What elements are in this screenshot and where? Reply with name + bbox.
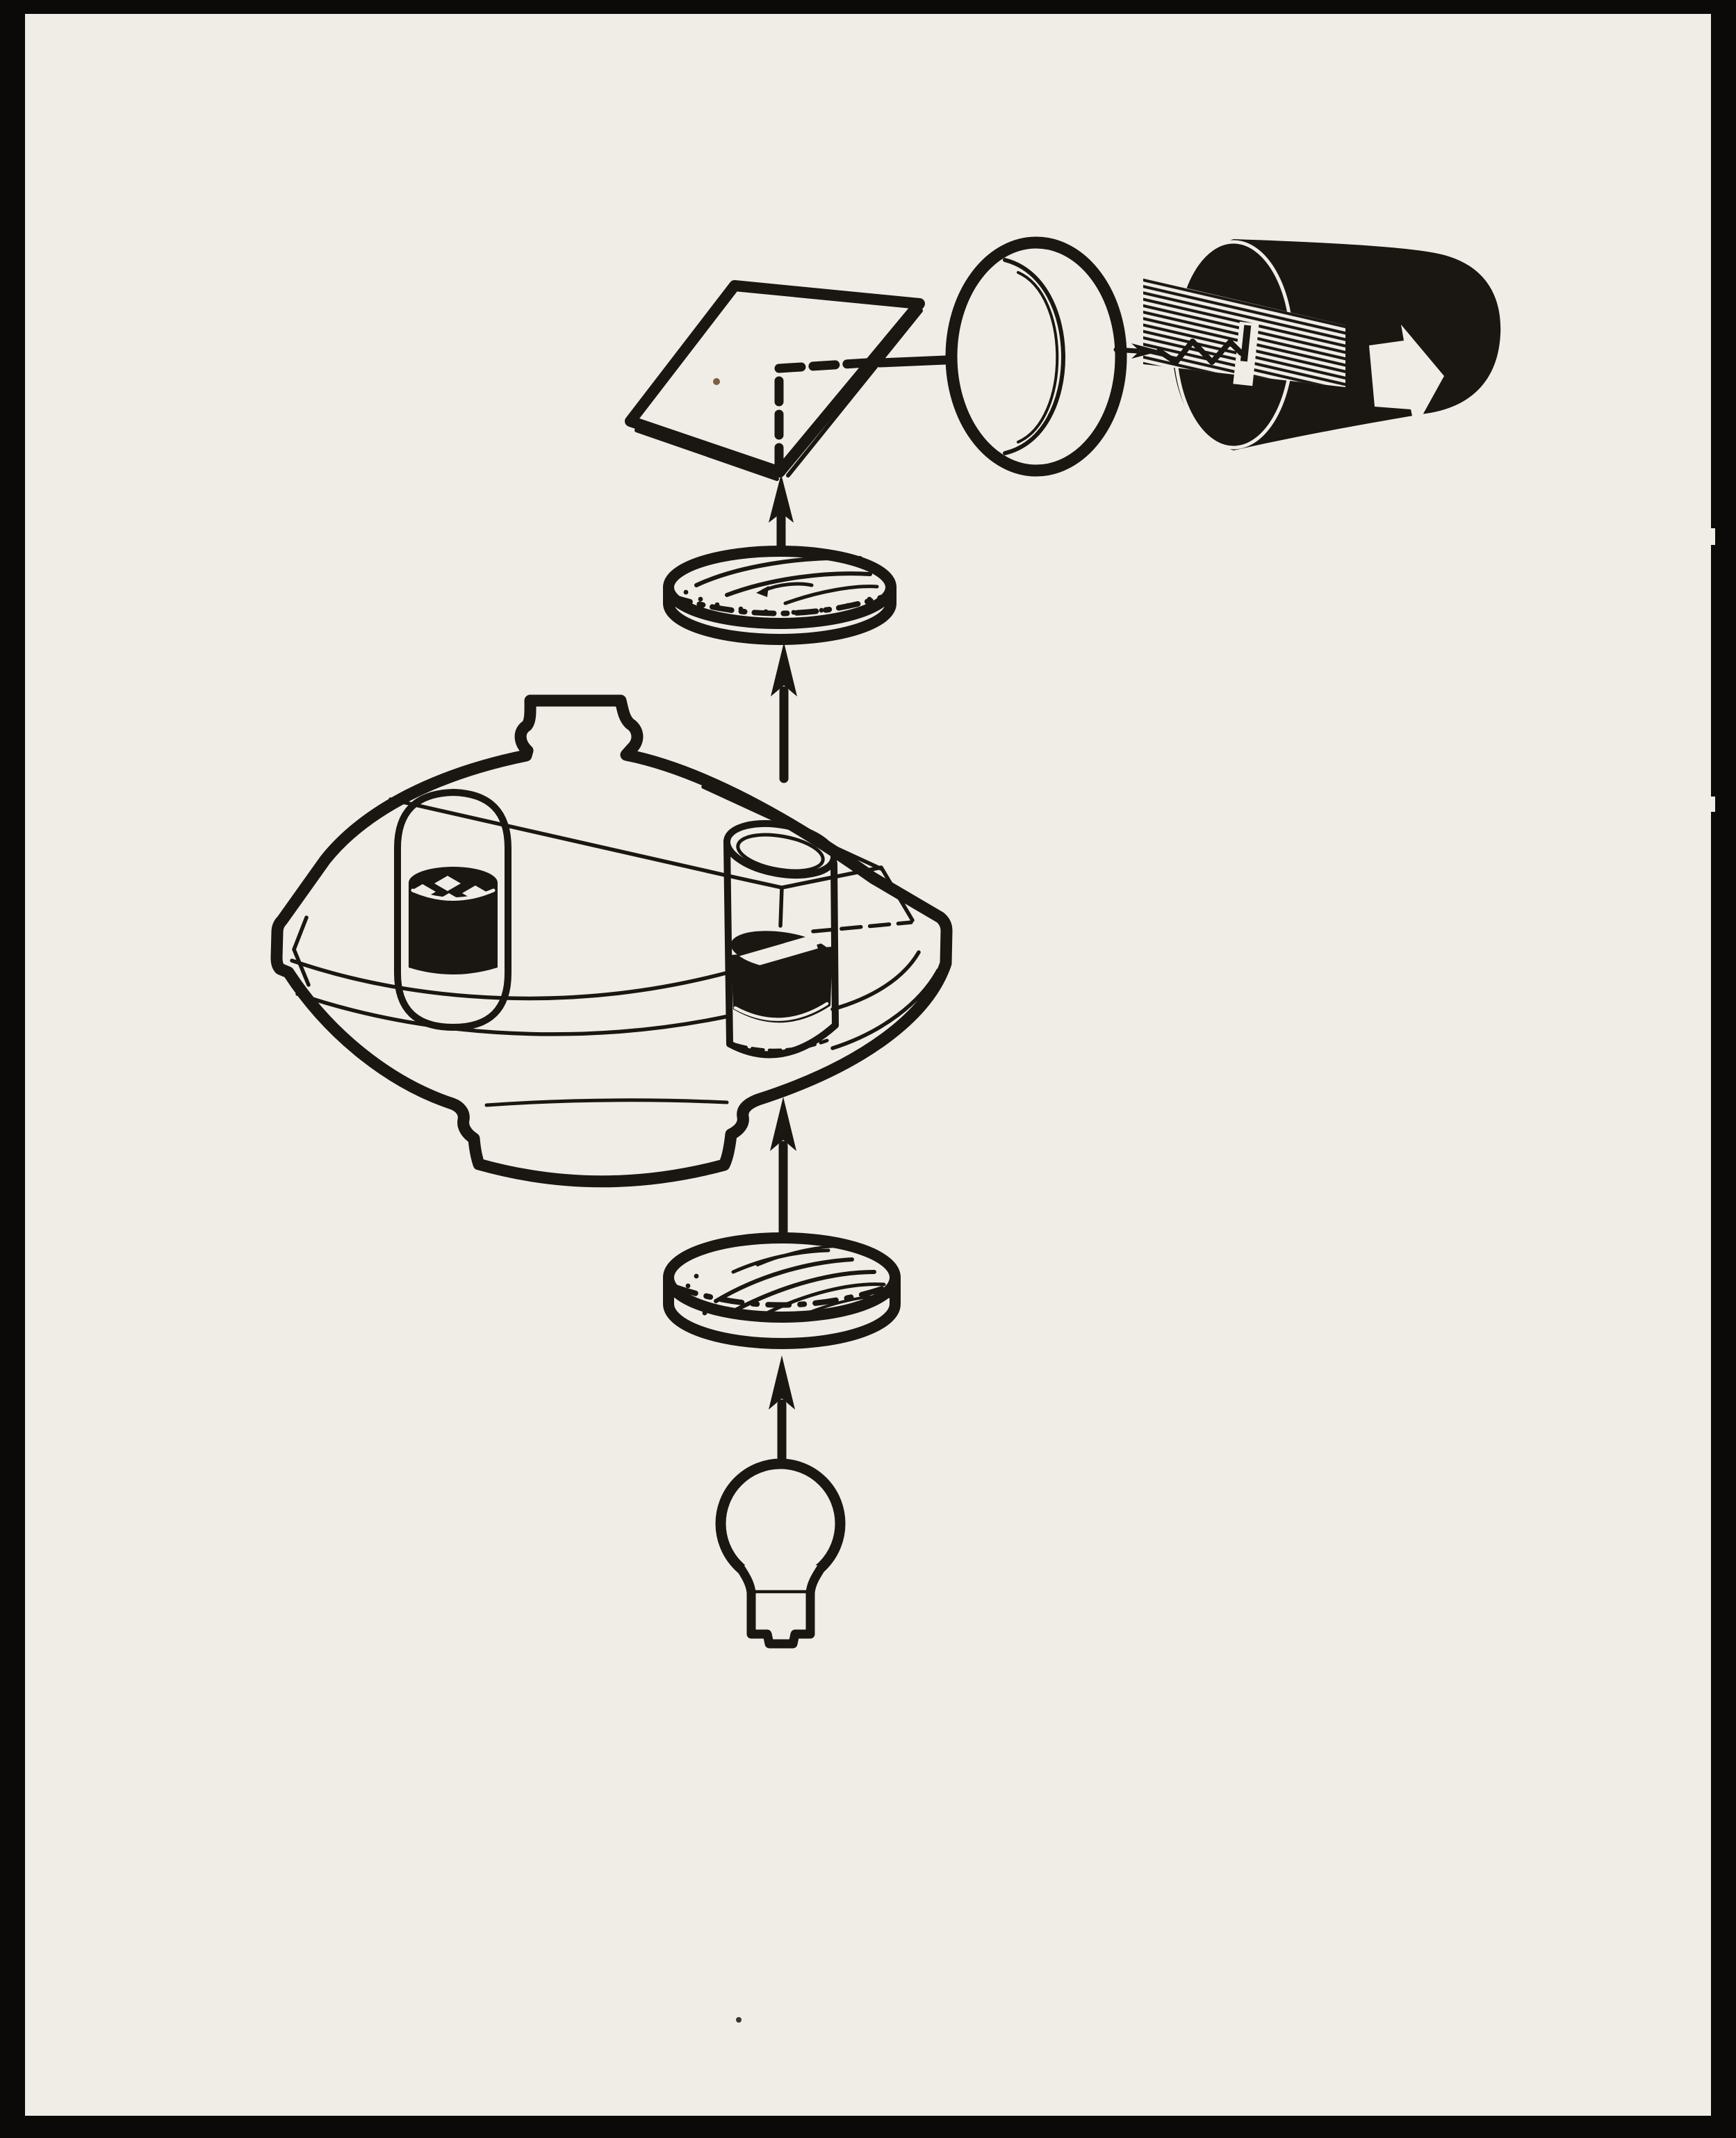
diffuser-disc-upper	[669, 551, 891, 639]
dashed-horizontal	[779, 362, 877, 368]
right-vial-right-wall	[834, 863, 835, 1025]
right-vial-left-wall	[727, 844, 730, 1044]
paper-speck	[713, 378, 720, 385]
interior-corner-vertical	[780, 888, 782, 926]
scan-stage	[0, 0, 1736, 2138]
bottom-speck	[736, 2017, 742, 2023]
lens-disc	[951, 243, 1121, 471]
paper-edge-nick-2	[1705, 797, 1715, 812]
paper-edge-nick-1	[1705, 528, 1715, 545]
diffuser-disc-lower	[669, 1238, 895, 1344]
